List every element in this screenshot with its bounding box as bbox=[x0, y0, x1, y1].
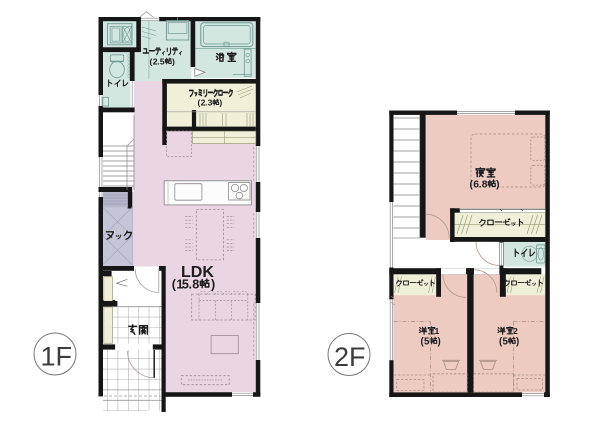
svg-text:5: 5 bbox=[503, 336, 509, 347]
svg-text:5: 5 bbox=[160, 57, 165, 67]
svg-text:2F: 2F bbox=[334, 342, 366, 372]
svg-text:): ) bbox=[438, 336, 441, 347]
svg-text:): ) bbox=[211, 277, 215, 291]
svg-text:8: 8 bbox=[192, 277, 199, 291]
svg-text:): ) bbox=[172, 57, 175, 67]
svg-text:1F: 1F bbox=[41, 342, 73, 372]
svg-text:1: 1 bbox=[435, 326, 440, 336]
svg-text:3: 3 bbox=[208, 98, 213, 108]
svg-text:8: 8 bbox=[482, 180, 488, 191]
svg-text:): ) bbox=[516, 336, 519, 347]
svg-text:): ) bbox=[496, 180, 499, 191]
svg-text:5: 5 bbox=[424, 336, 430, 347]
svg-text:): ) bbox=[219, 98, 222, 108]
